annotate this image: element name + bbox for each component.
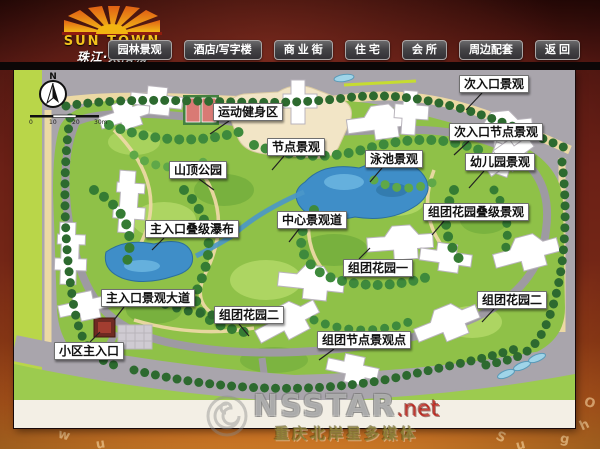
svg-text:10: 10: [49, 119, 57, 126]
frame-letter: u: [95, 436, 107, 449]
svg-text:20: 20: [72, 119, 80, 126]
map-label-pool-landscape: 泳池景观: [365, 150, 423, 168]
nav-back-button[interactable]: 返 回: [535, 40, 580, 60]
nav-garden-landscape[interactable]: 园林景观: [108, 40, 172, 60]
frame-letter: u: [514, 437, 527, 449]
map-label-cluster-garden-2-south: 组团花园二: [214, 306, 284, 324]
frame-letter: w: [56, 427, 71, 445]
map-label-hilltop-park: 山顶公园: [169, 161, 227, 179]
app-window: W w u S u g h O: [0, 0, 600, 449]
nav-hotel-office[interactable]: 酒店/写字楼: [184, 40, 262, 60]
map-label-kindergarten: 幼儿园景观: [465, 153, 535, 171]
nav-surrounding-facilities[interactable]: 周边配套: [459, 40, 523, 60]
site-plan-map: N 0 10 20 30m 运动健身区 节点景观 泳池景观 次入口景观 次入口节…: [14, 70, 575, 428]
frame-letter: O: [582, 395, 598, 413]
frame-letter: g: [559, 431, 571, 447]
nav-commercial-street[interactable]: 商 业 街: [274, 40, 333, 60]
svg-text:30m: 30m: [94, 119, 108, 126]
map-label-sports-fitness: 运动健身区: [213, 103, 283, 121]
map-label-community-main-entrance: 小区主入口: [54, 342, 124, 360]
map-label-cluster-terraced: 组团花园叠级景观: [423, 203, 529, 221]
svg-text:0: 0: [29, 119, 33, 126]
header-divider: [0, 62, 600, 70]
map-label-main-entrance-avenue: 主入口景观大道: [101, 289, 195, 307]
map-label-cluster-garden-2-east: 组团花园二: [477, 291, 547, 309]
map-label-secondary-entrance-node: 次入口节点景观: [449, 123, 543, 141]
map-label-node-landscape: 节点景观: [267, 138, 325, 156]
map-label-cluster-garden-1: 组团花园一: [343, 259, 413, 277]
map-label-cluster-node-viewpoint: 组团节点景观点: [317, 331, 411, 349]
frame-letter: h: [577, 417, 592, 435]
map-label-central-avenue: 中心景观道: [277, 211, 347, 229]
top-navigation: 园林景观 酒店/写字楼 商 业 街 住 宅 会 所 周边配套 返 回: [108, 40, 580, 60]
header-bar: SUN TOWN 珠江·太阳城 园林景观 酒店/写字楼 商 业 街 住 宅 会 …: [0, 0, 600, 62]
map-label-main-entrance-waterfall: 主入口叠级瀑布: [145, 220, 239, 238]
svg-text:N: N: [49, 72, 57, 82]
nav-clubhouse[interactable]: 会 所: [402, 40, 447, 60]
frame-letter: S: [493, 429, 508, 447]
map-label-secondary-entrance: 次入口景观: [459, 75, 529, 93]
nav-residence[interactable]: 住 宅: [345, 40, 390, 60]
